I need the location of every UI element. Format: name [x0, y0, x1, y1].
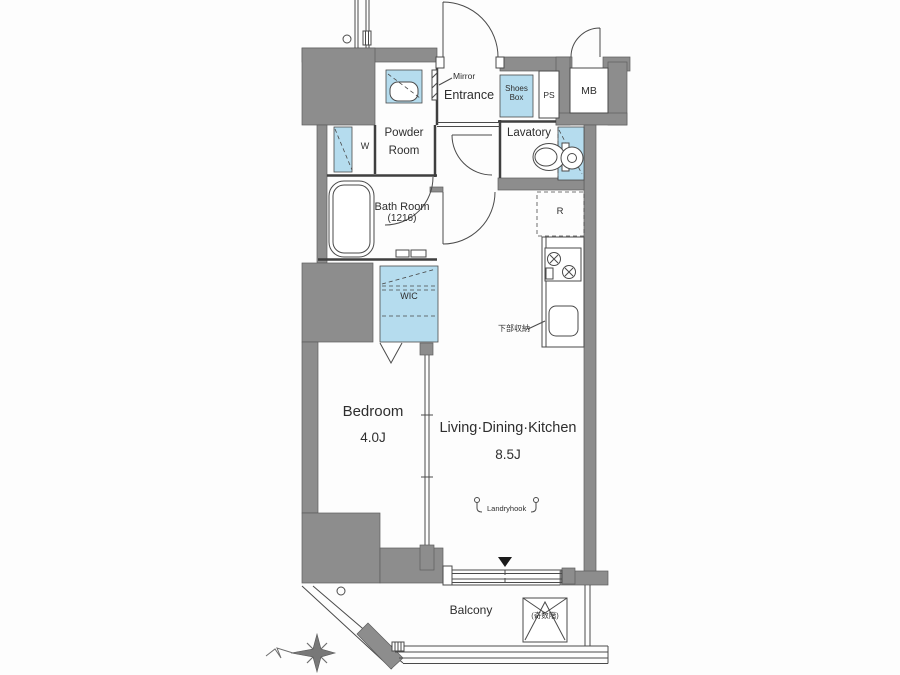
pipe-circle [343, 35, 351, 43]
balcony-railing [391, 646, 608, 664]
compass-rose [266, 634, 335, 672]
entrance-door-jamb-left [436, 57, 444, 68]
powder-room-label-line1: Powder [375, 127, 433, 140]
shoes-box-label-line1: Shoes [505, 84, 528, 93]
balcony-structure [302, 585, 608, 669]
bathtub [329, 181, 374, 257]
ldk-door [443, 192, 495, 244]
bedroom-size: 4.0J [332, 430, 414, 446]
fridge-label: R [550, 207, 570, 218]
balcony-label: Balcony [440, 604, 502, 618]
hatch-label: (奇数階) [521, 612, 569, 621]
wic-door [380, 343, 402, 363]
entrance-door-jamb-right [496, 57, 504, 68]
washer-label: W [356, 141, 374, 151]
powder-room-label-line2: Room [375, 145, 433, 158]
bath-shelf [411, 250, 426, 257]
wall-left-upper [317, 125, 327, 263]
mb-label: MB [568, 85, 610, 97]
vanity-sink [390, 82, 418, 101]
wall-left-lower [302, 342, 318, 513]
shoes-box-label-line2: Box [510, 93, 524, 102]
direction-marker [498, 557, 512, 567]
kitchen-sink [549, 306, 578, 336]
wall-bottom-left-block [302, 513, 380, 583]
wall-left-pillar-mid [302, 263, 373, 342]
wall-window-right-stub [562, 568, 575, 584]
mirror-label: Mirror [453, 72, 475, 82]
shoes-box-label: Shoes Box [500, 84, 533, 102]
floor-plan: Mirror Entrance Shoes Box PS MB Powder R… [0, 0, 900, 675]
hall-door [452, 135, 492, 175]
riser-pipes [343, 0, 371, 48]
window-jamb-left [443, 566, 452, 585]
pipe-valve [363, 31, 371, 45]
balcony-drain [337, 587, 345, 595]
washer-space [334, 127, 352, 172]
ps-label: PS [539, 91, 559, 101]
lavatory-label: Lavatory [498, 127, 560, 140]
entrance-door [443, 2, 498, 57]
bath-room-label-line2: (1216) [370, 213, 434, 225]
entrance-label: Entrance [437, 88, 501, 102]
wall-top-pillar [302, 48, 375, 125]
compass-tail [266, 648, 293, 658]
bath-shelf [396, 250, 409, 257]
mirror-leader [439, 78, 452, 85]
under-storage-label: 下部収納 [498, 324, 530, 333]
wic-closet [380, 266, 438, 342]
wall-right [584, 125, 596, 573]
laundry-hook-label: Landryhook [487, 505, 526, 514]
ldk-size: 8.5J [430, 447, 586, 463]
wic-label: WIC [388, 291, 430, 301]
bath-room-label-line1: Bath Room [370, 201, 434, 214]
balcony-window [443, 557, 562, 585]
mb-door [571, 28, 600, 57]
lavatory-basin [561, 147, 583, 169]
toilet [533, 144, 565, 171]
wall-mb-bottom [556, 113, 627, 125]
bedroom-label: Bedroom [332, 403, 414, 420]
ldk-label: Living·Dining·Kitchen [430, 420, 586, 437]
